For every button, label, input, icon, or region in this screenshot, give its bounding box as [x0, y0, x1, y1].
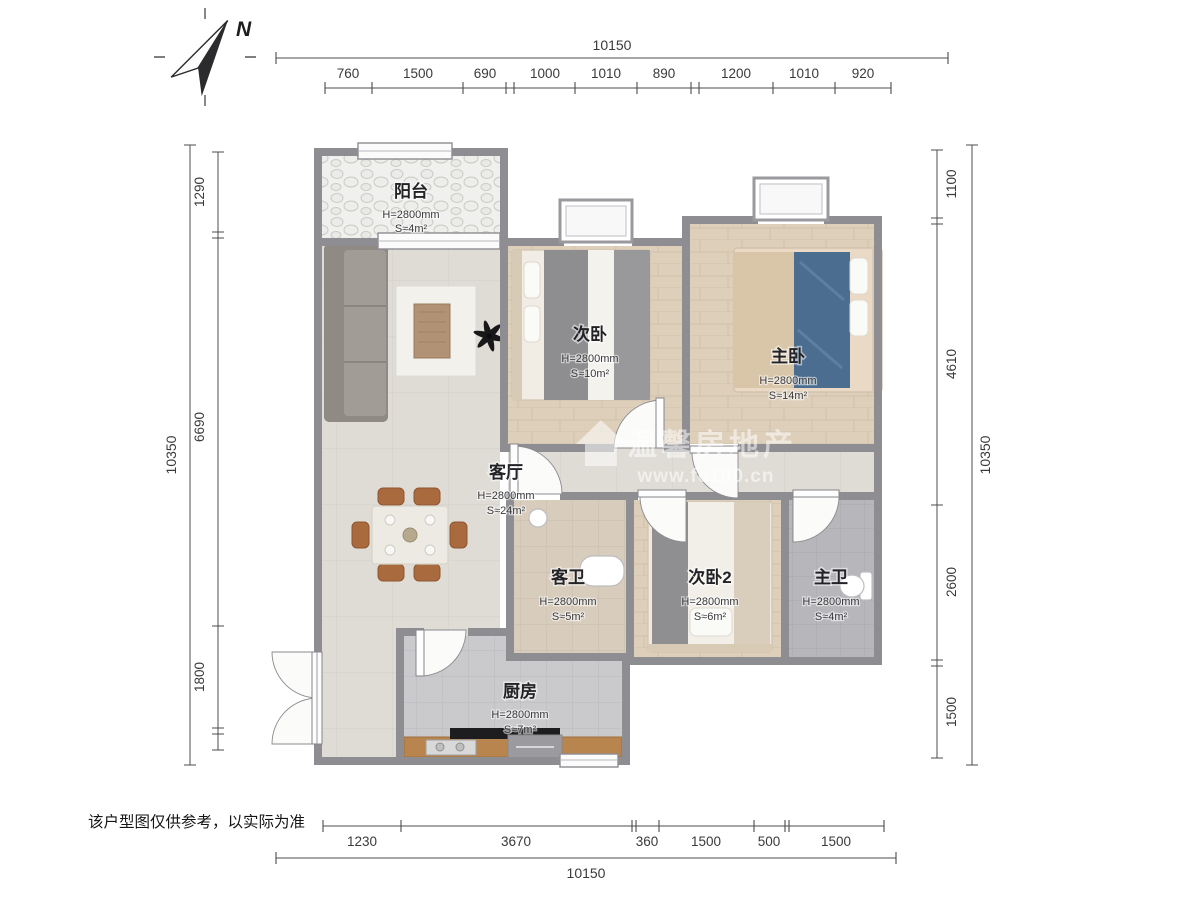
dim-left-total: 10350	[163, 435, 179, 474]
dim-left-seg-0: 1290	[192, 177, 207, 207]
dim-right-total: 10350	[977, 435, 993, 474]
kitchen-height: H=2800mm	[491, 709, 548, 721]
dim-top-total: 10150	[593, 37, 632, 53]
dim-bottom-seg-0: 1230	[347, 834, 377, 849]
compass: N	[154, 8, 256, 106]
bedroom2-bay-window	[560, 200, 632, 242]
dim-right-seg-0: 1100	[944, 169, 959, 198]
dim-top-seg-4: 1010	[591, 66, 621, 81]
bedroom2-height: H=2800mm	[561, 353, 618, 365]
master-bathroom-name: 主卫	[814, 567, 848, 587]
master-bedroom-area: S≈14m²	[769, 390, 808, 402]
dim-bottom-seg-3: 1500	[691, 834, 721, 849]
dim-top-seg-1: 1500	[403, 66, 433, 81]
dim-top-seg-2: 690	[474, 66, 497, 81]
dimension-bottom: 1230 3670 360 1500 500 1500 10150	[276, 820, 896, 881]
entry-double-door	[272, 652, 322, 744]
master-bathroom-height: H=2800mm	[802, 596, 859, 608]
guest-bathroom-name: 客卫	[550, 567, 585, 587]
guest-bathroom-height: H=2800mm	[539, 596, 596, 608]
dim-bottom-total: 10150	[567, 865, 606, 881]
balcony-height: H=2800mm	[382, 209, 439, 221]
floor-plan: 温馨房地产 www.fc100.cn 阳台 H=2800mm S≈4m² 次卧 …	[0, 0, 1200, 900]
living-room-height: H=2800mm	[477, 490, 534, 502]
master-bathroom-area: S≈4m²	[815, 611, 848, 623]
bedroom3-name: 次卧2	[688, 567, 731, 587]
dim-bottom-seg-5: 1500	[821, 834, 851, 849]
dim-left-seg-1: 6690	[192, 412, 207, 442]
dim-top-seg-5: 890	[653, 66, 676, 81]
dim-right-seg-1: 4610	[944, 349, 959, 379]
dimension-right: 1100 4610 2600 1500 10350	[931, 145, 993, 765]
dim-bottom-seg-2: 360	[636, 834, 659, 849]
coffee-table	[396, 286, 476, 376]
balcony-window	[358, 143, 452, 159]
master-bay-window	[754, 178, 828, 220]
balcony-sliding-door	[378, 233, 500, 249]
disclaimer-text: 该户型图仅供参考，以实际为准	[88, 813, 305, 831]
master-bedroom-name: 主卧	[771, 346, 805, 366]
kitchen-window	[560, 754, 618, 767]
dim-top-seg-3: 1000	[530, 66, 560, 81]
living-room-name: 客厅	[488, 462, 523, 482]
dim-top-seg-8: 920	[852, 66, 875, 81]
dim-top-seg-0: 760	[337, 66, 360, 81]
bedroom3-height: H=2800mm	[681, 596, 738, 608]
dim-right-seg-2: 2600	[944, 567, 959, 597]
sofa	[324, 244, 388, 422]
balcony-area: S≈4m²	[395, 223, 428, 235]
dim-bottom-seg-1: 3670	[501, 834, 531, 849]
watermark-url: www.fc100.cn	[637, 466, 775, 487]
dimension-top: 10150 760 1500 690 1000 1010 890 1200 10…	[276, 37, 948, 94]
bedroom2-area: S≈10m²	[571, 368, 610, 380]
compass-north-label: N	[236, 18, 252, 41]
kitchen-name: 厨房	[503, 681, 537, 701]
kitchen-area: S≈7m²	[504, 724, 537, 736]
floor-plan-page: 温馨房地产 www.fc100.cn 阳台 H=2800mm S≈4m² 次卧 …	[0, 0, 1200, 900]
dim-top-seg-7: 1010	[789, 66, 819, 81]
watermark-brand: 温馨房地产	[627, 429, 797, 462]
dim-bottom-seg-4: 500	[758, 834, 781, 849]
balcony-name: 阳台	[394, 181, 428, 201]
bedroom3-area: S≈6m²	[694, 611, 727, 623]
master-bed	[734, 248, 882, 392]
dim-left-seg-2: 1800	[192, 662, 207, 692]
dim-right-seg-3: 1500	[944, 697, 959, 727]
sink	[426, 740, 476, 755]
dimension-left: 10350 1290 6690 1800	[163, 145, 224, 765]
guest-bathroom-area: S≈5m²	[552, 611, 585, 623]
master-bedroom-height: H=2800mm	[759, 375, 816, 387]
living-room-area: S≈24m²	[487, 505, 526, 517]
dim-top-seg-6: 1200	[721, 66, 751, 81]
bedroom2-name: 次卧	[573, 324, 607, 344]
